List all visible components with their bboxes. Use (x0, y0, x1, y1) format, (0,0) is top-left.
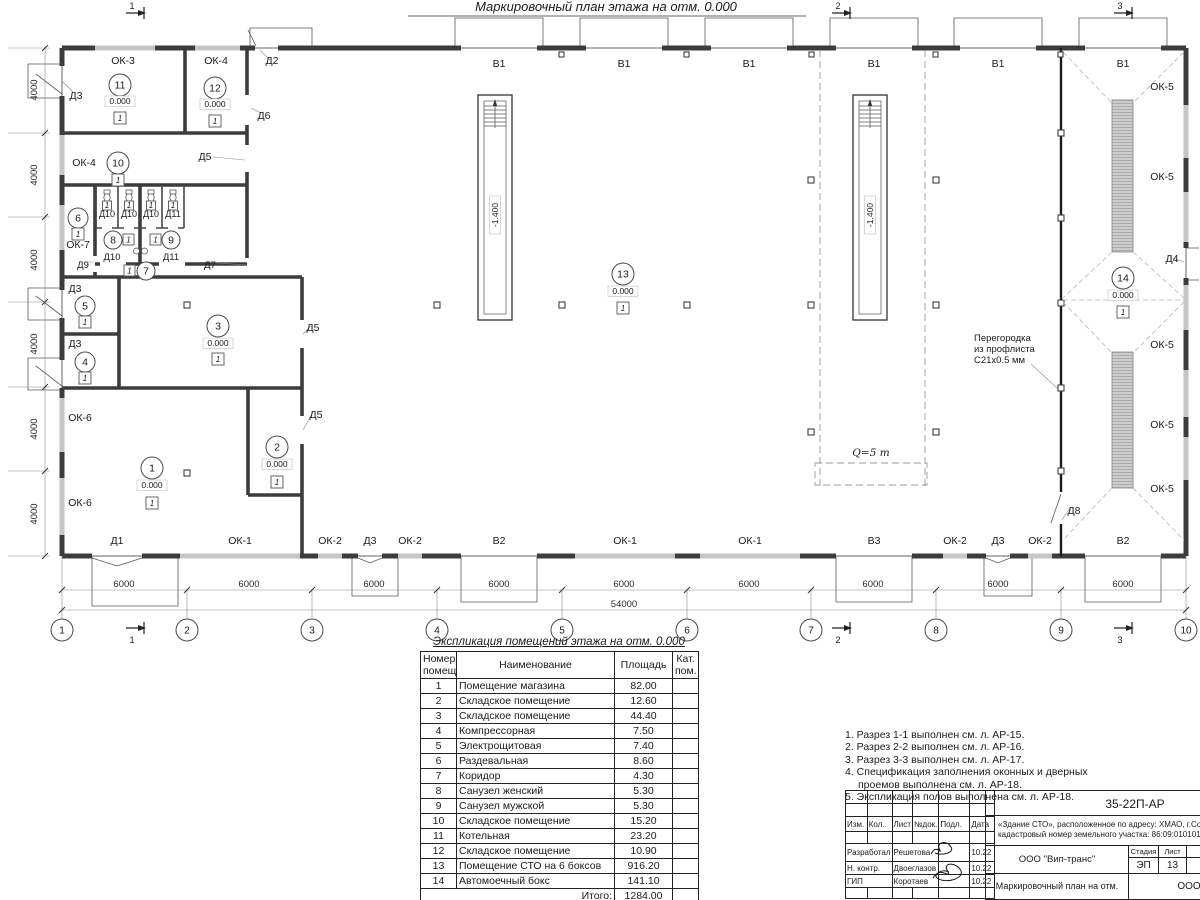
opening-label: ОК-1 (228, 535, 252, 547)
schedule-cell: 4.30 (615, 769, 673, 784)
schedule-cell (673, 874, 699, 889)
door-label: Д7 (204, 260, 216, 271)
gate-labels: В1 В1 В1 В1 В1 В1 (493, 58, 1130, 70)
dimension-label: 6000 (113, 579, 134, 590)
service-pit: -1.400 (853, 95, 887, 320)
bottom-opening-labels: Д1 ОК-1 ОК-2 Д3 ОК-2 В2 ОК-1 ОК-1 В3 ОК-… (111, 535, 1130, 547)
schedule-cell: 1 (421, 679, 457, 694)
dimension-label: 4000 (29, 333, 40, 354)
section-marker: 2 (835, 635, 840, 645)
schedule-row: 9Санузел мужской5.30 (421, 799, 699, 814)
sig-row: Н. контр. Двоеглазов 10.22 (846, 862, 995, 875)
schedule-cell: 14 (421, 874, 457, 889)
floor-type-marker: 1 (171, 201, 175, 210)
schedule-cell: 8.60 (615, 754, 673, 769)
section-markers: 1 2 3 1 2 3 (126, 1, 1134, 645)
dimension-label: 6000 (862, 579, 883, 590)
schedule-cell: Помещение СТО на 6 боксов (457, 859, 615, 874)
doc-block: 35-22П-АР «Здание СТО», расположенное по… (985, 790, 1200, 900)
schedule-row: 10Складское помещение15.20 (421, 814, 699, 829)
room-number: 9 (168, 235, 174, 247)
schedule-cell: Санузел мужской (457, 799, 615, 814)
door-label: Д3 (70, 90, 83, 102)
sig-header-row: Изм. Кол. Лист №док. Подл. Дата (846, 817, 995, 832)
door-label: Д10 (99, 209, 115, 219)
floor-type-marker: 1 (1121, 308, 1125, 317)
object-line: «Здание СТО», расположенное по адресу: Х… (998, 820, 1200, 830)
schedule-cell: Коридор (457, 769, 615, 784)
grid-bubble: 7 (808, 626, 814, 637)
pit-elevation-label: -1.400 (865, 203, 875, 227)
section-marker: 3 (1117, 1, 1122, 11)
sig-header: Подл. (939, 817, 970, 832)
opening-label: В2 (493, 535, 506, 547)
dimension-label: 6000 (488, 579, 509, 590)
schedule-row: 5Электрощитовая7.40 (421, 739, 699, 754)
opening-label: Д1 (111, 535, 124, 547)
room-number: 10 (112, 158, 124, 170)
opening-label: В2 (1117, 535, 1130, 547)
schedule-cell: Котельная (457, 829, 615, 844)
schedule-cell: Компрессорная (457, 724, 615, 739)
plan-title: Маркировочный план этажа на отм. 0.000 (408, 0, 806, 16)
floor-type-marker: 1 (150, 499, 154, 508)
floor-type-marker: 1 (149, 201, 153, 210)
gate-label: В1 (618, 58, 631, 70)
floor-type-marker: 1 (621, 304, 625, 313)
door-label: Д3 (69, 283, 82, 295)
sig-header: Изм. (846, 817, 868, 832)
schedule-row: 8Санузел женский5.30 (421, 784, 699, 799)
sig-role: Разработал (846, 844, 893, 862)
schedule-cell: 141.10 (615, 874, 673, 889)
schedule-header: Площадь (615, 652, 673, 679)
door-label: Д5 (199, 151, 212, 163)
door-label: Д3 (69, 338, 82, 350)
total-value: 1284.00 (615, 889, 673, 900)
schedule-cell: Складское помещение (457, 844, 615, 859)
schedule-cell: 12.60 (615, 694, 673, 709)
door-label: Д9 (77, 260, 89, 271)
elevation-label: 0.000 (266, 459, 288, 469)
sig-header: №док. (912, 817, 938, 832)
schedule-cell (673, 784, 699, 799)
object-line: кадастровый номер земельного участка: 86… (998, 830, 1200, 840)
empty-cell (673, 889, 699, 900)
opening-label: Д3 (992, 535, 1005, 547)
schedule-table: Номер помещ. Наименование Площадь Кат. п… (420, 651, 699, 900)
signature-block: Изм. Кол. Лист №док. Подл. Дата Разработ… (845, 790, 995, 899)
org-name: ООО "Вип-транс" (985, 845, 1129, 874)
window-label: ОК-6 (68, 412, 92, 424)
door-label: Д10 (103, 252, 120, 263)
schedule-cell: 5.30 (615, 784, 673, 799)
schedule-row: 1Помещение магазина82.00 (421, 679, 699, 694)
room-number: 3 (215, 321, 221, 333)
schedule-cell: 7 (421, 769, 457, 784)
dimension-label: 4000 (29, 249, 40, 270)
schedule-cell (673, 679, 699, 694)
schedule-cell: 7.50 (615, 724, 673, 739)
room-number: 2 (274, 442, 280, 454)
sig-role: Н. контр. (846, 862, 893, 875)
window-label: ОК-4 (72, 157, 96, 169)
schedule-cell (673, 799, 699, 814)
schedule-cell: 6 (421, 754, 457, 769)
schedule-row: 11Котельная23.20 (421, 829, 699, 844)
window-label: ОК-5 (1150, 339, 1174, 351)
door-label: Д10 (143, 209, 159, 219)
schedule-row: 13Помещение СТО на 6 боксов916.20 (421, 859, 699, 874)
schedule-cell (673, 769, 699, 784)
floor-plan: Маркировочный план этажа на отм. 0.000 (0, 0, 1200, 648)
elevation-label: 0.000 (204, 99, 226, 109)
floor-type-marker: 1 (116, 176, 120, 185)
room-number: 4 (82, 357, 88, 369)
grid-bubble: 4 (434, 626, 440, 637)
note-line: Перегородка (974, 333, 1031, 344)
schedule-title: Экспликация помещений этажа на отм. 0.00… (420, 636, 698, 648)
schedule-cell: 7.40 (615, 739, 673, 754)
note-line: из профлиста (974, 344, 1035, 355)
opening-label: ОК-2 (398, 535, 422, 547)
gate-label: В1 (493, 58, 506, 70)
schedule-cell: 916.20 (615, 859, 673, 874)
interior-walls (62, 48, 302, 556)
dimension-column-left: 4000 4000 4000 4000 4000 4000 (8, 45, 50, 559)
sig-header: Лист (892, 817, 912, 832)
drawing-title: Маркировочный план на отм. 0.000 (985, 873, 1129, 900)
opening-label: ОК-2 (1028, 535, 1052, 547)
dimension-label: 6000 (1112, 579, 1133, 590)
window-label: ОК-3 (111, 55, 135, 67)
gate-label: В1 (743, 58, 756, 70)
schedule-cell (673, 829, 699, 844)
elevation-label: 0.000 (207, 338, 229, 348)
dimension-label: 4000 (29, 164, 40, 185)
schedule-cell (673, 739, 699, 754)
blank-row (846, 832, 995, 844)
floor-type-marker: 1 (76, 230, 80, 239)
note-line: С21х0.5 мм (974, 355, 1025, 366)
schedule-cell: 12 (421, 844, 457, 859)
schedule-cell: 15.20 (615, 814, 673, 829)
schedule-cell: 13 (421, 859, 457, 874)
floor-type-marker: 1 (83, 374, 87, 383)
schedule-cell: 4 (421, 724, 457, 739)
room-number: 13 (617, 269, 629, 281)
room-marks: 1 0.000 1 2 0.000 1 3 0.000 1 4 1 5 1 6 … (68, 74, 1138, 509)
schedule-cell (673, 844, 699, 859)
schedule-cell: Автомоечный бокс (457, 874, 615, 889)
schedule-cell: 23.20 (615, 829, 673, 844)
dimension-label: 6000 (613, 579, 634, 590)
window-label: ОК-5 (1150, 419, 1174, 431)
elevation-label: 0.000 (109, 96, 131, 106)
schedule-cell: 3 (421, 709, 457, 724)
sheet-value: 13 (1158, 857, 1187, 874)
floor-type-marker: 1 (216, 355, 220, 364)
blank-row (846, 791, 995, 804)
opening-label: В3 (868, 535, 881, 547)
elevation-label: 0.000 (1112, 290, 1134, 300)
room-number: 6 (75, 213, 81, 225)
schedule-row: 2Складское помещение12.60 (421, 694, 699, 709)
door-label: Д6 (258, 110, 271, 122)
schedule-cell: Раздевальная (457, 754, 615, 769)
floor-type-marker: 1 (118, 114, 122, 123)
schedule-cell: Складское помещение (457, 694, 615, 709)
note-line: 3. Разрез 3-3 выполнен см. л. АР-17. (845, 754, 1145, 766)
schedule-row: 6Раздевальная8.60 (421, 754, 699, 769)
elevation-label: 0.000 (141, 480, 163, 490)
page-title: Маркировочный план этажа на отм. 0.000 (475, 0, 738, 14)
dimension-label: 6000 (363, 579, 384, 590)
room-number: 12 (209, 83, 221, 95)
room-number: 14 (1117, 273, 1129, 285)
gate-label: В1 (1117, 58, 1130, 70)
opening-label: ОК-1 (613, 535, 637, 547)
schedule-cell: Электрощитовая (457, 739, 615, 754)
schedule-cell: 5 (421, 739, 457, 754)
note-line: 4. Спецификация заполнения оконных и две… (845, 766, 1145, 778)
schedule-total-row: Итого: 1284.00 (421, 889, 699, 900)
room-number: 5 (82, 301, 88, 313)
pit-elevation-label: -1.400 (490, 203, 500, 227)
floor-type-marker: 1 (126, 236, 130, 245)
sig-role: ГИП (846, 875, 893, 888)
window-label: ОК-4 (204, 55, 228, 67)
schedule-cell (673, 754, 699, 769)
schedule-cell: Складское помещение (457, 814, 615, 829)
schedule-cell: 5.30 (615, 799, 673, 814)
note-line: 1. Разрез 1-1 выполнен см. л. АР-15. (845, 729, 1145, 741)
schedule-header: Номер помещ. (421, 652, 457, 679)
dimension-label: 6000 (987, 579, 1008, 590)
dimension-label: 6000 (238, 579, 259, 590)
blank-row (846, 804, 995, 817)
dimension-label: 4000 (29, 79, 40, 100)
door-label: Д4 (1166, 253, 1179, 265)
gate-label: В1 (868, 58, 881, 70)
grid-bubble: 1 (59, 626, 65, 637)
grid-bubble: 8 (933, 626, 939, 637)
grid-bubble: 3 (309, 626, 315, 637)
elevation-label: 0.000 (612, 286, 634, 296)
floor-type-marker: 1 (153, 236, 157, 245)
doc-number: 35-22П-АР (985, 790, 1200, 816)
opening-label: ОК-2 (318, 535, 342, 547)
grid-bubble: 5 (559, 626, 565, 637)
schedule-cell: 8 (421, 784, 457, 799)
window-label: ОК-5 (1150, 483, 1174, 495)
schedule-row: 7Коридор4.30 (421, 769, 699, 784)
floor-type-marker: 1 (127, 267, 131, 276)
door-label: Д8 (1068, 505, 1081, 517)
partition-note: Перегородка из профлиста С21х0.5 мм (974, 333, 1035, 366)
floor-type-marker: 1 (127, 201, 131, 210)
schedule-cell: 10 (421, 814, 457, 829)
schedule-cell (673, 814, 699, 829)
dimension-row-bottom: 6000 6000 6000 6000 6000 6000 6000 6000 … (59, 556, 1189, 619)
grid-bubble: 6 (684, 626, 690, 637)
room-number: 8 (110, 235, 116, 247)
door-label: Д11 (163, 252, 179, 263)
floor-type-marker: 1 (83, 318, 87, 327)
sheets-value (1186, 857, 1200, 874)
schedule-header-row: Номер помещ. Наименование Площадь Кат. п… (421, 652, 699, 679)
stage-value: ЭП (1128, 857, 1159, 874)
schedule-row: 3Складское помещение44.40 (421, 709, 699, 724)
partition (1051, 48, 1064, 556)
door-label: Д11 (165, 209, 180, 219)
schedule-cell: 11 (421, 829, 457, 844)
window-label: ОК-5 (1150, 171, 1174, 183)
org-name-2: ООО "Альян (1128, 873, 1200, 900)
sig-header: Кол. (867, 817, 892, 832)
floor-type-marker: 1 (275, 478, 279, 487)
schedule-cell: 44.40 (615, 709, 673, 724)
schedule-cell (673, 709, 699, 724)
blank-row (846, 888, 995, 899)
window-label: ОК-5 (1150, 81, 1174, 93)
grid-bubble: 9 (1058, 626, 1064, 637)
section-marker: 3 (1117, 635, 1122, 645)
dimension-label: 6000 (738, 579, 759, 590)
crane-load-label: Q=5 т (852, 447, 889, 459)
schedule-row: 12Складское помещение10.90 (421, 844, 699, 859)
schedule-cell: 9 (421, 799, 457, 814)
dimension-label: 4000 (29, 418, 40, 439)
opening-label: Д3 (364, 535, 377, 547)
floor-type-marker: 1 (105, 201, 109, 210)
signature-scrawl (927, 838, 967, 893)
floor-type-marker: 1 (213, 117, 217, 126)
schedule-cell: 10.90 (615, 844, 673, 859)
drawing-sheet: Маркировочный план этажа на отм. 0.000 (0, 0, 1200, 900)
window-label: ОК-7 (66, 239, 90, 251)
note-line: 2. Разрез 2-2 выполнен см. л. АР-16. (845, 741, 1145, 753)
door-label: Д5 (310, 409, 323, 421)
window-label: ОК-6 (68, 497, 92, 509)
gate-label: В1 (992, 58, 1005, 70)
opening-label: ОК-1 (738, 535, 762, 547)
schedule-header: Кат. пом. (673, 652, 699, 679)
schedule-cell (673, 724, 699, 739)
section-marker: 1 (129, 1, 134, 11)
door-label: Д10 (121, 209, 137, 219)
section-marker: 2 (835, 1, 840, 11)
sig-row: ГИП Коротаев 10.22 (846, 875, 995, 888)
grid-bubble: 2 (184, 626, 190, 637)
schedule-cell: 82.00 (615, 679, 673, 694)
schedule-cell: 2 (421, 694, 457, 709)
sig-row: Разработал Решетова 10.22 (846, 844, 995, 862)
schedule-cell (673, 859, 699, 874)
grid-bubble: 10 (1180, 626, 1192, 637)
section-marker: 1 (129, 635, 134, 645)
opening-label: ОК-2 (943, 535, 967, 547)
dimension-label: 4000 (29, 503, 40, 524)
schedule-header: Наименование (457, 652, 615, 679)
schedule-cell: Помещение магазина (457, 679, 615, 694)
door-label: Д5 (307, 322, 320, 334)
room-number: 7 (143, 266, 149, 278)
schedule-row: 4Компрессорная7.50 (421, 724, 699, 739)
dimension-total-label: 54000 (611, 599, 637, 610)
door-label: Д2 (266, 55, 279, 67)
total-label: Итого: (421, 889, 615, 900)
object-description: «Здание СТО», расположенное по адресу: Х… (985, 815, 1200, 846)
schedule-cell: Складское помещение (457, 709, 615, 724)
schedule-cell: Санузел женский (457, 784, 615, 799)
room-number: 11 (115, 80, 126, 92)
schedule-row: 14Автомоечный бокс141.10 (421, 874, 699, 889)
title-block: Изм. Кол. Лист №док. Подл. Дата Разработ… (845, 790, 1200, 900)
service-pit: -1.400 (478, 95, 512, 320)
room-number: 1 (149, 463, 155, 475)
room-schedule: Экспликация помещений этажа на отм. 0.00… (420, 636, 698, 900)
schedule-cell (673, 694, 699, 709)
schedule-body: 1Помещение магазина82.002Складское помещ… (421, 679, 699, 889)
